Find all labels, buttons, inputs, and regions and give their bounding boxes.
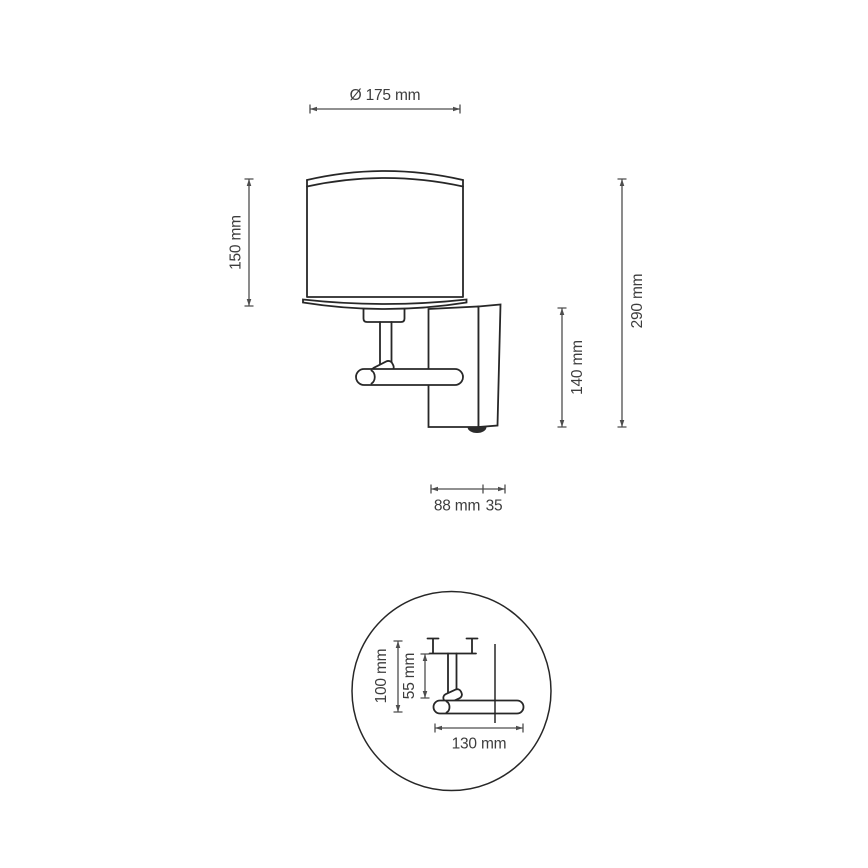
dimension-overall-height: 290 mm [618,179,647,427]
dimension-line [558,308,567,427]
dimension-detail-arm-length: 130 mm [435,724,523,753]
shade-height-label: 150 mm [228,215,245,270]
lamp-shade [303,171,467,309]
detail-wall-bracket [428,639,478,654]
front-view: Ø 175 mm 150 mm 140 mm 290 mm [228,87,647,515]
dimension-bracket-height: 140 mm [558,308,587,427]
dimension-detail-drop: 100 mm [373,641,403,712]
wall-plate-front-face [429,307,479,428]
detail-stem-label: 55 mm [401,653,418,699]
overall-height-label: 290 mm [629,274,646,329]
dimension-line [435,724,523,733]
plate-depth-label: 35 [486,498,503,515]
dimension-shade-diameter: Ø 175 mm [310,87,460,114]
shade-diameter-label: Ø 175 mm [350,87,421,104]
switch-knob [468,427,487,433]
bracket-height-label: 140 mm [569,340,586,395]
lamp-dimension-sheet: Ø 175 mm 150 mm 140 mm 290 mm [0,0,868,868]
shade-body [307,171,463,297]
dimension-line [618,179,627,427]
detail-view: 100 mm 55 mm 130 mm [352,592,551,791]
dimension-line [310,105,460,114]
dimension-depth: 88 mm 35 [431,485,505,515]
arm-stem [380,322,392,366]
detail-arm-length-label: 130 mm [452,736,507,753]
dimension-line [245,179,254,306]
arm-depth-label: 88 mm [434,498,480,515]
detail-drop-label: 100 mm [373,649,390,704]
dimension-line [431,485,505,494]
dimension-shade-height: 150 mm [228,179,254,306]
dimension-detail-stem: 55 mm [401,653,430,699]
wall-plate-side-face [479,305,501,428]
dimension-drawing-svg: Ø 175 mm 150 mm 140 mm 290 mm [0,0,868,868]
